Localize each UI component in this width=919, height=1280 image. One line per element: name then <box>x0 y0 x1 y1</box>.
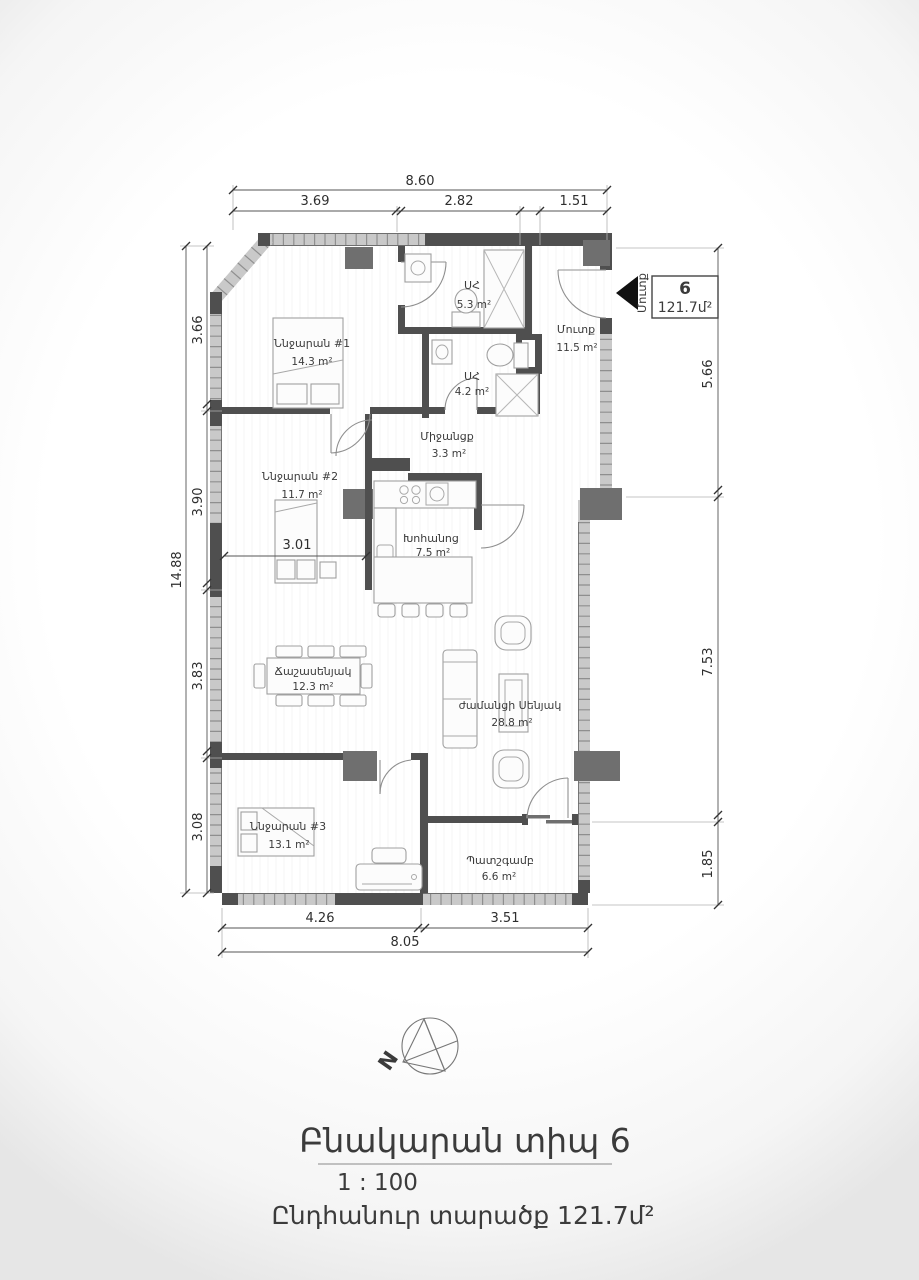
dim-left-1: 3.66 <box>191 316 206 345</box>
kitchen-label: Խոհանոց <box>403 532 459 545</box>
dim-left-3: 3.83 <box>191 662 206 691</box>
dim-bottom-total: 8.05 <box>391 935 420 950</box>
bedroom3-label: Ննջարան #3 <box>250 820 326 833</box>
bedroom2-area: 11.7 m² <box>281 489 322 501</box>
dim-inner: 3.01 <box>283 538 312 553</box>
compass: N <box>373 1018 458 1075</box>
entry-direction-label: Մուտք <box>635 273 649 313</box>
entrance-area: 11.5 m² <box>556 342 597 354</box>
corridor-area: 3.3 m² <box>432 448 466 460</box>
bedroom1-area: 14.3 m² <box>291 356 332 368</box>
bedroom2-label: Ննջարան #2 <box>262 470 338 483</box>
bath1-label: ՍՀ <box>464 279 480 292</box>
dim-top-3: 1.51 <box>560 194 589 209</box>
dimensions-bottom: 4.26 3.51 8.05 <box>218 908 592 958</box>
unit-area: 121.7մ² <box>658 300 713 316</box>
dim-right-2: 7.53 <box>701 648 716 677</box>
dim-left-2: 3.90 <box>191 488 206 517</box>
corridor-label: Միջանցք <box>420 430 474 443</box>
bedroom1-label: Ննջարան #1 <box>274 337 350 350</box>
bath2-area: 4.2 m² <box>455 386 489 398</box>
bedroom3-area: 13.1 m² <box>268 839 309 851</box>
dim-left-total: 14.88 <box>170 551 185 588</box>
plan-title: Բնակարան տիպ 6 <box>299 1121 630 1160</box>
floor-plan-svg: Ննջարան #1 14.3 m² ՍՀ 5.3 m² ՍՀ 4.2 m² Մ… <box>0 0 919 1280</box>
dim-bottom-2: 3.51 <box>491 911 520 926</box>
dim-bottom-1: 4.26 <box>306 911 335 926</box>
dim-top-1: 3.69 <box>301 194 330 209</box>
floor-plan-page: Ննջարան #1 14.3 m² ՍՀ 5.3 m² ՍՀ 4.2 m² Մ… <box>0 0 919 1280</box>
dining-label: Ճաշասենյակ <box>275 665 352 678</box>
living-label: ժամանցի Սենյակ <box>459 699 562 712</box>
dining-area: 12.3 m² <box>292 681 333 693</box>
bath2-label: ՍՀ <box>464 370 480 383</box>
dim-right-3: 1.85 <box>701 850 716 879</box>
unit-number: 6 <box>679 279 691 299</box>
plan-scale: 1 : 100 <box>337 1170 418 1196</box>
dim-top-total: 8.60 <box>406 174 435 189</box>
unit-tag: Մուտք 6 121.7մ² <box>616 273 718 318</box>
kitchen-area: 7.5 m² <box>416 547 450 559</box>
compass-north-label: N <box>373 1047 403 1075</box>
living-area: 28.8 m² <box>491 717 532 729</box>
plan-total-area: Ընդհանուր տարածք 121.7մ² <box>271 1201 654 1230</box>
dim-right-1: 5.66 <box>701 360 716 389</box>
entrance-label: Մուտք <box>557 323 595 336</box>
balcony-label: Պատշգամբ <box>466 854 534 867</box>
dim-top-2: 2.82 <box>445 194 474 209</box>
dim-left-4: 3.08 <box>191 813 206 842</box>
title-block: Բնակարան տիպ 6 1 : 100 Ընդհանուր տարածք … <box>271 1121 654 1230</box>
balcony-area: 6.6 m² <box>482 871 516 883</box>
bath1-area: 5.3 m² <box>457 299 491 311</box>
